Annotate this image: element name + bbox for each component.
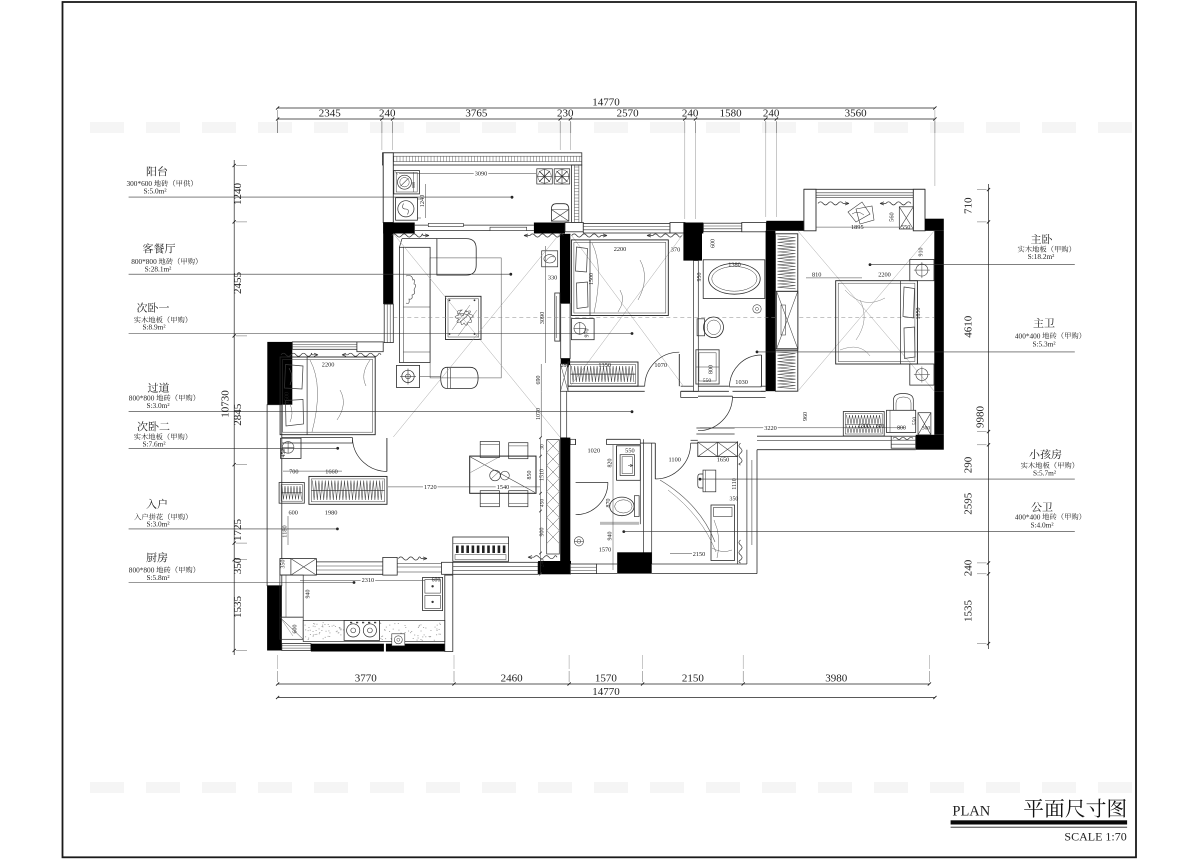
svg-text:1850: 1850 (916, 308, 922, 320)
svg-text:1240: 1240 (232, 182, 244, 205)
svg-text:2845: 2845 (232, 403, 244, 426)
svg-text:3980: 3980 (825, 672, 848, 684)
svg-text:600: 600 (710, 239, 716, 248)
svg-text:1350: 1350 (598, 362, 611, 369)
svg-text:14770: 14770 (592, 686, 620, 698)
svg-text:1570: 1570 (595, 672, 618, 684)
svg-text:30: 30 (540, 444, 546, 450)
svg-text:S:28.1m²: S:28.1m² (145, 264, 173, 273)
svg-text:1180: 1180 (282, 525, 289, 537)
svg-text:2455: 2455 (232, 272, 244, 295)
svg-text:3090: 3090 (539, 312, 546, 325)
svg-text:9980: 9980 (975, 406, 987, 429)
svg-text:3560: 3560 (845, 108, 868, 120)
svg-text:S:5.7m²: S:5.7m² (1033, 469, 1057, 478)
svg-text:1500: 1500 (589, 273, 595, 285)
svg-text:S:18.2m²: S:18.2m² (1028, 252, 1056, 261)
svg-text:S:7.6m²: S:7.6m² (142, 439, 166, 448)
svg-text:1020: 1020 (588, 447, 601, 454)
svg-text:2460: 2460 (501, 672, 524, 684)
svg-text:2200: 2200 (614, 246, 627, 253)
svg-text:S:4.0m²: S:4.0m² (1030, 521, 1054, 530)
svg-text:PLAN: PLAN (952, 804, 990, 820)
svg-text:S:3.0m²: S:3.0m² (146, 519, 170, 528)
svg-text:900: 900 (540, 528, 546, 537)
svg-text:870: 870 (606, 499, 612, 508)
svg-text:1510: 1510 (540, 469, 546, 481)
svg-text:888: 888 (411, 182, 416, 188)
svg-text:240: 240 (963, 559, 975, 576)
svg-text:10730: 10730 (220, 390, 232, 418)
svg-text:3090: 3090 (475, 171, 488, 178)
svg-text:350: 350 (232, 557, 244, 574)
svg-text:SCALE 1:70: SCALE 1:70 (1064, 830, 1126, 844)
svg-text:2150: 2150 (682, 672, 705, 684)
svg-text:820: 820 (608, 459, 614, 468)
svg-text:940: 940 (306, 590, 312, 599)
svg-text:2310: 2310 (362, 577, 375, 584)
svg-text:350: 350 (730, 497, 739, 503)
svg-text:910: 910 (919, 248, 925, 257)
svg-text:1300: 1300 (858, 424, 870, 430)
svg-text:690: 690 (536, 376, 542, 385)
svg-text:1110: 1110 (732, 478, 738, 490)
svg-text:S:3.0m²: S:3.0m² (146, 401, 170, 410)
svg-text:1895: 1895 (851, 224, 864, 231)
svg-text:550: 550 (703, 378, 712, 384)
svg-text:550: 550 (901, 224, 910, 231)
svg-text:290: 290 (963, 456, 975, 473)
svg-text:1580: 1580 (720, 108, 743, 120)
svg-text:600: 600 (432, 578, 441, 584)
svg-text:350: 350 (281, 560, 287, 569)
svg-text:330: 330 (548, 275, 557, 282)
svg-text:240: 240 (682, 108, 699, 120)
svg-text:370: 370 (671, 247, 680, 254)
svg-text:550: 550 (912, 417, 918, 426)
svg-text:800: 800 (876, 424, 885, 430)
svg-text:14770: 14770 (592, 96, 620, 108)
svg-text:280: 280 (561, 363, 570, 369)
svg-text:1720: 1720 (424, 484, 437, 491)
svg-text:450: 450 (540, 499, 546, 508)
svg-text:1070: 1070 (536, 408, 542, 420)
svg-text:1070: 1070 (654, 362, 667, 369)
svg-text:450: 450 (281, 449, 287, 458)
svg-text:1535: 1535 (232, 596, 244, 619)
svg-text:1380: 1380 (728, 262, 741, 269)
svg-text:960: 960 (803, 412, 809, 421)
svg-text:2150: 2150 (693, 551, 706, 558)
svg-text:710: 710 (963, 197, 975, 214)
svg-text:1030: 1030 (735, 379, 748, 386)
svg-text:560: 560 (889, 212, 896, 221)
svg-text:3220: 3220 (764, 425, 777, 432)
svg-text:240: 240 (540, 559, 546, 568)
svg-text:550: 550 (625, 447, 634, 454)
svg-text:S:5.8m²: S:5.8m² (146, 573, 170, 582)
svg-text:230: 230 (557, 108, 574, 120)
svg-text:2200: 2200 (878, 272, 891, 279)
svg-text:850: 850 (527, 471, 533, 480)
svg-text:1660: 1660 (325, 468, 338, 475)
svg-text:600: 600 (288, 510, 297, 517)
svg-text:2200: 2200 (322, 362, 335, 369)
svg-text:940: 940 (608, 532, 614, 541)
svg-text:1570: 1570 (599, 547, 612, 554)
svg-text:600: 600 (293, 625, 299, 634)
svg-text:700: 700 (289, 468, 298, 475)
svg-text:240: 240 (379, 108, 396, 120)
svg-text:1980: 1980 (325, 510, 338, 517)
svg-text:2345: 2345 (319, 108, 342, 120)
svg-text:970: 970 (584, 329, 590, 338)
svg-text:1100: 1100 (669, 456, 681, 463)
svg-text:1725: 1725 (232, 519, 244, 542)
svg-text:S:5.0m²: S:5.0m² (143, 187, 167, 196)
svg-text:4610: 4610 (963, 315, 975, 338)
svg-text:2570: 2570 (617, 108, 640, 120)
svg-text:1240: 1240 (419, 195, 426, 208)
svg-text:950: 950 (697, 273, 703, 282)
svg-text:1535: 1535 (963, 600, 975, 623)
svg-text:240: 240 (763, 108, 780, 120)
svg-text:3770: 3770 (355, 672, 378, 684)
svg-text:2595: 2595 (963, 492, 975, 515)
svg-text:S:8.9m²: S:8.9m² (142, 323, 166, 332)
svg-text:S:5.3m²: S:5.3m² (1032, 340, 1056, 349)
svg-text:1500: 1500 (284, 392, 290, 404)
svg-text:300: 300 (922, 425, 931, 431)
svg-text:800: 800 (897, 426, 906, 432)
svg-text:3765: 3765 (465, 108, 488, 120)
svg-text:810: 810 (812, 272, 821, 279)
svg-text:1540: 1540 (497, 484, 510, 491)
svg-text:1650: 1650 (717, 456, 730, 463)
svg-text:800: 800 (708, 365, 714, 374)
